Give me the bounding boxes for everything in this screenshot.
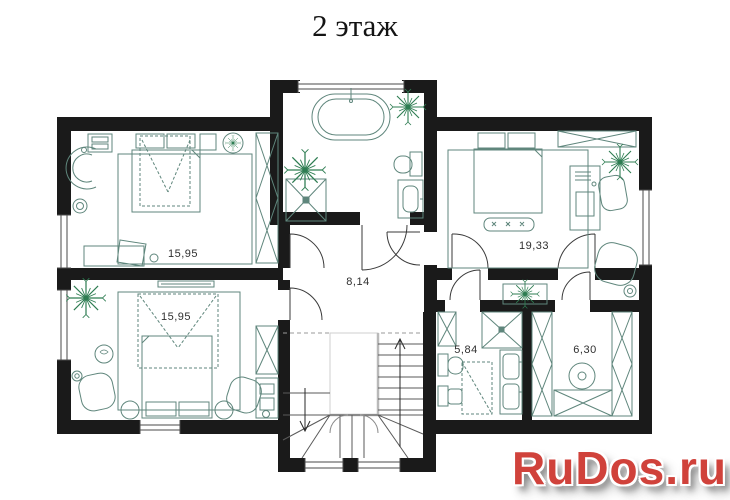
room-label-hall: 8,14 [346,276,369,288]
room-label-bedroom-lower-left: 15,95 [161,311,191,323]
double-sink-icon [500,350,522,414]
door-arc [450,270,480,300]
wardrobe-icon [612,312,632,416]
desk-icon [84,240,158,266]
window [358,458,400,472]
door-arc [562,272,590,300]
door-arc [558,234,595,268]
window [57,290,71,360]
shelf-icon [438,312,456,346]
washing-machine-icon [569,363,595,389]
stair-down-arrow [300,388,310,431]
door-arc [290,288,322,320]
armchair-icon [77,371,118,413]
toilet-icon [394,152,422,176]
window [140,420,180,434]
window [639,190,652,265]
bidet-icon [438,386,462,406]
stairs [283,333,423,458]
side-table-icon [73,199,87,213]
side-table-icon [624,285,636,297]
wardrobe-icon [558,131,636,147]
bench-icon [484,218,534,231]
room-label-bathroom: 5,84 [454,344,477,356]
tv-console-icon [158,281,214,287]
room-label-bedroom-right: 19,33 [519,240,549,252]
window [57,215,71,268]
window [305,458,343,472]
plant-icon [390,89,426,125]
wardrobe-icon [532,312,552,416]
closet-outline-dashed [462,362,492,414]
bed-icon [132,134,200,212]
rug [118,292,240,410]
desk-icon [570,166,600,230]
bathtub-icon [312,88,390,140]
plant-icon [284,149,325,190]
watermark: RuDos.ru [512,441,727,495]
wardrobe-icon [256,326,278,374]
plant-icon [66,278,106,318]
toilet-icon [438,354,463,376]
floor-plan-drawing: 15,95 15,95 8,14 19,33 5,84 6,30 [0,0,730,500]
stair-core [330,333,378,415]
floor-plan-page: 2 этаж [0,0,730,500]
shower-icon [482,312,522,348]
room-label-laundry: 6,30 [573,344,596,356]
door-arc [387,232,420,265]
armchair-icon [592,240,641,289]
room-label-bedroom-upper-left: 15,95 [168,248,198,260]
bed-icon [474,133,542,213]
potted-plant-icon [223,133,243,153]
side-table-icon [72,371,82,381]
door-arc [452,234,488,268]
stair-winders [340,415,364,458]
pouf-icon [95,345,113,363]
office-chair-icon [597,174,629,212]
dresser-icon [82,134,113,153]
nightstand-icon [200,134,216,150]
storage-box-icon [554,390,612,416]
door-arc [290,234,324,268]
plant-icon [602,144,638,180]
